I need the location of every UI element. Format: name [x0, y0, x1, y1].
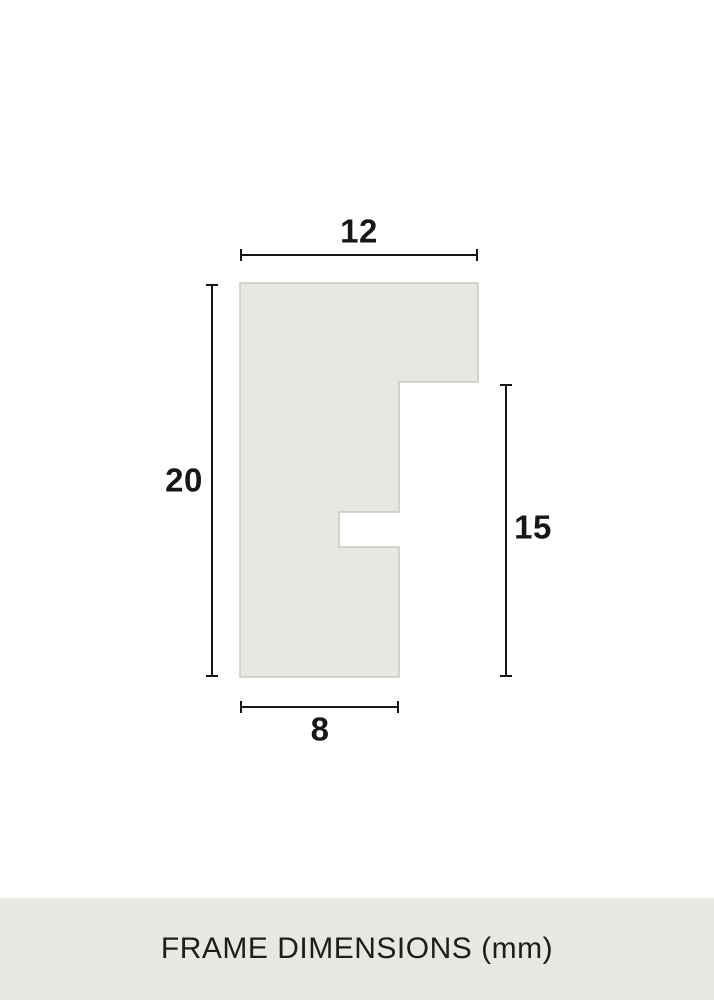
dimension-label-top-width: 12: [340, 215, 378, 248]
dimension-line-right-height: [500, 384, 512, 677]
dimension-label-left-height: 20: [165, 464, 203, 497]
dimension-line-top-width: [240, 249, 478, 261]
dimension-label-bottom-width: 8: [311, 713, 330, 746]
footer-caption: FRAME DIMENSIONS (mm): [161, 932, 553, 966]
dimension-line-left-height: [206, 284, 218, 677]
frame-profile-shape: [240, 283, 478, 677]
dimension-label-right-height: 15: [514, 511, 552, 544]
profile-diagram-svg: [0, 0, 714, 1000]
footer-bar: FRAME DIMENSIONS (mm): [0, 898, 714, 1000]
frame-dimensions-diagram: 12 20 15 8 FRAME DIMENSIONS (mm): [0, 0, 714, 1000]
